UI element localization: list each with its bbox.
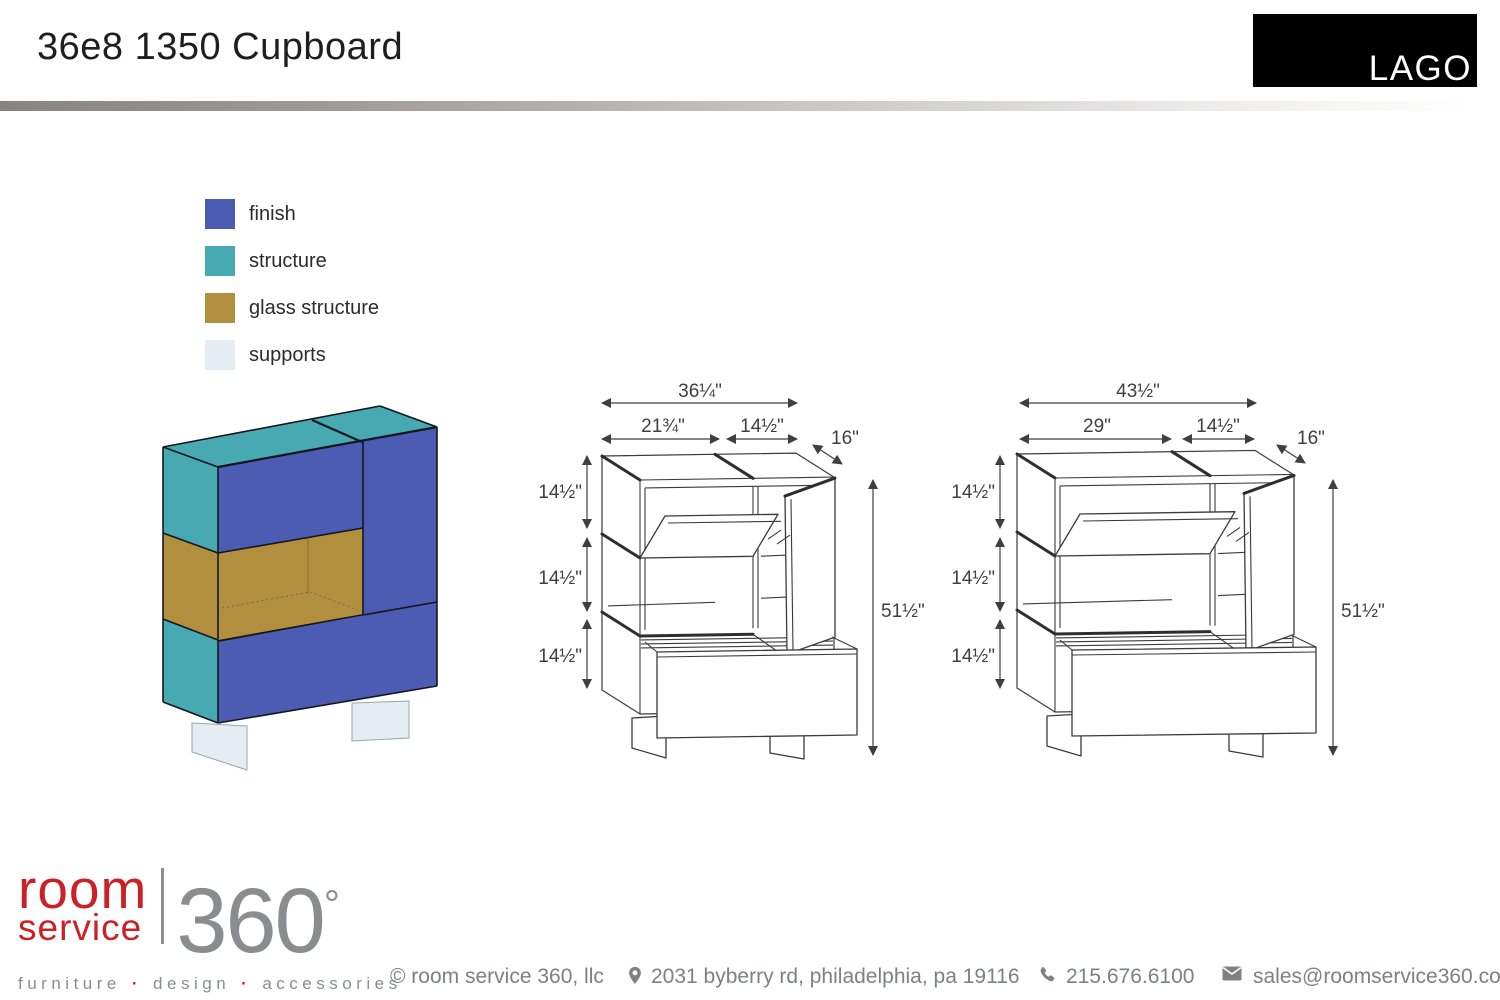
legend-label-finish: finish: [249, 203, 296, 226]
email-icon: [1222, 966, 1240, 984]
page-title: 36e8 1350 Cupboard: [37, 26, 403, 69]
legend-label-glass-structure: glass structure: [249, 297, 379, 320]
legend-row-finish: finish: [205, 199, 379, 229]
tagline-dot: ·: [230, 974, 262, 993]
tagline-furniture: furniture: [18, 974, 121, 993]
phone-text: 215.676.6100: [1066, 965, 1194, 989]
degree-mark: °: [324, 883, 340, 927]
dim-section-2: 14½": [538, 568, 582, 589]
dimension-drawing-right: 43½" 29" 14½" 16" 14½" 14½" 14½" 51½": [930, 370, 1410, 800]
spec-sheet-page: 36e8 1350 Cupboard LAGO finish structure…: [0, 0, 1500, 1000]
location-pin-icon: [626, 966, 644, 984]
dimension-drawing-left: 36¼" 21¾" 14½" 16" 14½" 14½" 14½" 51½": [520, 370, 950, 800]
cabinet-wireframe: [602, 453, 857, 759]
legend-swatch-glass-structure: [205, 293, 235, 323]
brand-logo: LAGO: [1253, 14, 1477, 87]
tagline-design: design: [153, 974, 230, 993]
logo-word-room: room: [18, 866, 147, 912]
legend-swatch-structure: [205, 246, 235, 276]
dim-depth: 16": [831, 428, 859, 449]
roomservice360-logo: room service 360° furniture·design·acces…: [18, 866, 402, 994]
dim-upper-right-width: 14½": [1196, 416, 1240, 437]
legend-swatch-finish: [205, 199, 235, 229]
dim-section-3: 14½": [538, 646, 582, 667]
dim-section-1: 14½": [951, 482, 995, 503]
dim-upper-left-width: 21¾": [641, 416, 685, 437]
cabinet-wireframe: [1017, 450, 1316, 757]
logo-number-360: 360°: [176, 866, 340, 960]
legend-row-structure: structure: [205, 246, 379, 276]
dim-section-1: 14½": [538, 482, 582, 503]
color-legend: finish structure glass structure support…: [205, 199, 379, 387]
tagline-dot: ·: [121, 974, 153, 993]
copyright-text: © room service 360, llc: [390, 965, 604, 989]
dim-section-2: 14½": [951, 568, 995, 589]
legend-label-supports: supports: [249, 344, 326, 367]
dim-overall-height: 51½": [881, 601, 925, 622]
brand-logo-text: LAGO: [1369, 51, 1472, 86]
cupboard-support-right: [352, 701, 409, 741]
dim-depth: 16": [1297, 428, 1325, 449]
dim-overall-width: 36¼": [678, 381, 722, 402]
address-text: 2031 byberry rd, philadelphia, pa 19116: [651, 965, 1020, 989]
email-text: sales@roomservice360.com: [1253, 965, 1500, 989]
cupboard-door-right-column: [363, 427, 437, 615]
logo-tagline: furniture·design·accessories: [18, 974, 402, 994]
legend-row-supports: supports: [205, 340, 379, 370]
dim-overall-height: 51½": [1341, 601, 1385, 622]
logo-word-service: service: [18, 912, 147, 944]
cupboard-rendering: [130, 390, 460, 785]
legend-swatch-supports: [205, 340, 235, 370]
cupboard-support-left: [192, 723, 247, 770]
tagline-accessories: accessories: [262, 974, 401, 993]
dim-section-3: 14½": [951, 646, 995, 667]
legend-row-glass-structure: glass structure: [205, 293, 379, 323]
logo-number-text: 360: [176, 870, 324, 972]
phone-icon: [1038, 966, 1056, 984]
dim-overall-width: 43½": [1116, 381, 1160, 402]
logo-divider: [161, 868, 164, 944]
dim-upper-left-width: 29": [1083, 416, 1111, 437]
header-divider: [0, 101, 1500, 111]
dim-upper-right-width: 14½": [740, 416, 784, 437]
legend-label-structure: structure: [249, 250, 327, 273]
